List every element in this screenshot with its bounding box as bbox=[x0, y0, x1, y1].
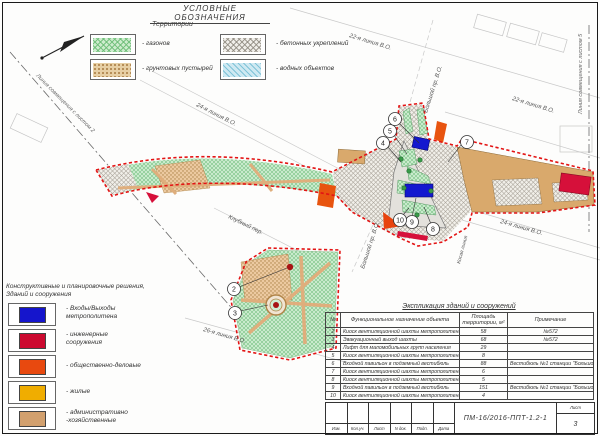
explication-title: Экспликация зданий и сооружений bbox=[325, 303, 593, 310]
col-header-name: Функциональное назначение объекта bbox=[341, 313, 460, 328]
match-line-label-sheet-2: Линия совмещения с листом 2 bbox=[34, 72, 96, 134]
tb-col-list: Лист bbox=[369, 423, 391, 434]
legend-residential bbox=[8, 381, 56, 404]
legend-public-business bbox=[8, 355, 56, 378]
table-row: 6Входной павильон в подземный вестибюль8… bbox=[326, 360, 594, 368]
sheet-number: 3 bbox=[557, 414, 594, 434]
engineering-structure bbox=[146, 192, 159, 203]
match-line-label-sheet-5: Линия совмещения с листом 5 bbox=[578, 33, 584, 115]
legend-administrative-label: - административно -хозяйственные bbox=[66, 409, 186, 425]
title-block: Изм. Кол.уч. Лист N док. Подп. Дата ПМ-1… bbox=[325, 402, 595, 435]
table-row: 8Киоск вентиляционной шахты метрополитен… bbox=[326, 376, 594, 384]
street-label-bolshoy-top: Большой пр. В.О. bbox=[422, 65, 444, 114]
street-label-klubny-lane: Клубный пер. bbox=[227, 214, 264, 237]
callout-5: 5 bbox=[388, 129, 392, 136]
callout-9: 9 bbox=[410, 220, 414, 227]
table-row: 2Киоск вентиляционной шахты метрополитен… bbox=[326, 328, 594, 336]
swatch-concrete bbox=[220, 34, 266, 55]
street-label-kosaya-line: Косая линия bbox=[456, 235, 469, 265]
street-label-24-line-b: 24-я линия В.О. bbox=[498, 219, 543, 237]
street-label-bolshoy-bottom: Большой пр. В.О. bbox=[359, 221, 381, 270]
table-row: 10Киоск вентиляционной шахты метрополите… bbox=[326, 392, 594, 400]
courtyard bbox=[492, 178, 542, 206]
tb-col-data: Дата bbox=[434, 423, 455, 434]
callout-4: 4 bbox=[381, 141, 385, 148]
legend-public-business-label: - общественно-деловые bbox=[66, 362, 186, 370]
table-row: 4Лифт для маломобильных групп населения2… bbox=[326, 344, 594, 352]
legend-engineering-label: - инженерные сооружения bbox=[66, 331, 186, 347]
swatch-lawns-label: - газонов bbox=[142, 40, 170, 47]
legend-residential-label: - жилые bbox=[66, 388, 186, 396]
object-3-marker bbox=[273, 302, 279, 308]
solutions-legend-heading: Конструктивные и планировочные решения, … bbox=[6, 283, 145, 300]
col-header-note: Примечание bbox=[508, 313, 594, 328]
legend-metro-entrance bbox=[8, 303, 56, 326]
tb-col-koluch: Кол.уч. bbox=[348, 423, 370, 434]
table-row: 7Киоск вентиляционной шахты метрополитен… bbox=[326, 368, 594, 376]
table-row: 3Эвакуационный выход шахты68№572 bbox=[326, 336, 594, 344]
engineering-building bbox=[559, 173, 591, 195]
sheet-label: Лист bbox=[557, 403, 594, 414]
callout-2: 2 bbox=[232, 287, 236, 294]
legend-engineering bbox=[8, 329, 56, 352]
swatch-dirt-label: - грунтовых пустырей bbox=[142, 65, 213, 72]
swatch-concrete-label: - бетонных укреплений bbox=[276, 40, 348, 47]
street-label-24-line: 24-я линия В.О. bbox=[194, 102, 237, 128]
east-quarter bbox=[457, 147, 594, 212]
table-row: 9Входной павильон в подземный вестибюль1… bbox=[326, 384, 594, 392]
callout-6: 6 bbox=[393, 117, 397, 124]
swatch-water bbox=[220, 59, 266, 80]
legend-administrative bbox=[8, 407, 56, 430]
swatch-lawns bbox=[90, 34, 136, 55]
north-arrow bbox=[40, 36, 84, 60]
dirt-patch bbox=[241, 254, 292, 302]
plan-sheet: 24-я линия В.О. 22-я линия В.О. 22-я лин… bbox=[0, 0, 600, 436]
tb-col-izm: Изм. bbox=[326, 423, 348, 434]
legend-metro-entrance-label: - Входы/Выходы метрополитена bbox=[66, 305, 186, 321]
tb-col-podp: Подп. bbox=[412, 423, 434, 434]
table-row: 5Киоск вентиляционной шахты метрополитен… bbox=[326, 352, 594, 360]
document-number: ПМ-16/2016-ППТ-1.2-1 bbox=[455, 403, 556, 434]
street-label-22-line-b: 22-я линия В.О. bbox=[510, 96, 555, 115]
callout-10: 10 bbox=[396, 218, 404, 225]
legend-subtitle: Территории bbox=[152, 21, 193, 28]
callout-8: 8 bbox=[431, 227, 435, 234]
swatch-dirt bbox=[90, 59, 136, 80]
callout-7: 7 bbox=[465, 140, 469, 147]
dirt-patch bbox=[155, 160, 210, 193]
park-lobe bbox=[233, 250, 338, 358]
tb-col-ndok: N док. bbox=[391, 423, 413, 434]
callout-3: 3 bbox=[233, 311, 237, 318]
col-header-num: № bbox=[326, 313, 341, 328]
public-business-building bbox=[434, 121, 447, 143]
swatch-water-label: - водных объектов bbox=[276, 65, 334, 72]
col-header-area: Площадь территории, м² bbox=[460, 313, 508, 328]
explication-table: Экспликация зданий и сооружений № Функци… bbox=[325, 303, 593, 400]
boulevard-band bbox=[96, 159, 337, 203]
object-2-marker bbox=[287, 264, 293, 270]
